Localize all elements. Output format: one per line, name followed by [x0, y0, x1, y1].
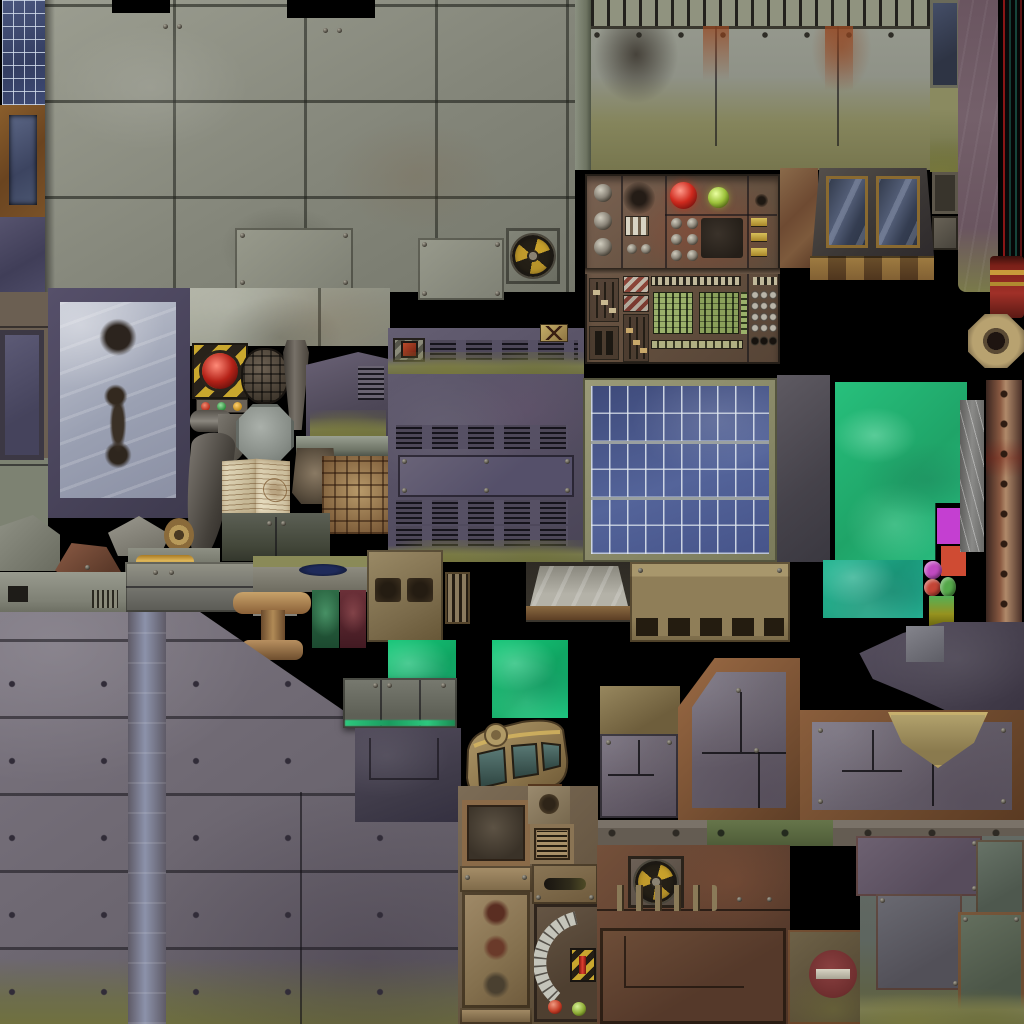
octagon-plate — [236, 404, 294, 464]
window-pane-left — [826, 176, 868, 248]
dark-button-row — [751, 336, 778, 347]
solar-cells — [591, 386, 769, 554]
magenta-button — [924, 561, 942, 579]
gauge-panel — [534, 904, 600, 1022]
maze-relief — [322, 456, 390, 534]
rivet — [767, 897, 772, 902]
book-diagram — [263, 477, 287, 503]
rivet — [402, 459, 407, 464]
toxic-glow-seam — [345, 720, 455, 726]
ramp-surface — [530, 566, 628, 606]
rivet — [387, 683, 392, 688]
keypad-grid — [92, 590, 118, 608]
diag-inner — [692, 672, 786, 808]
rivet — [163, 24, 168, 29]
panel-seam — [621, 176, 623, 268]
framed-plate — [600, 928, 786, 1024]
slider-handle — [633, 340, 640, 345]
stone-block-wall — [45, 0, 575, 292]
rust-wall-bottom — [597, 845, 790, 1024]
mossy-top-wall — [575, 0, 935, 170]
wall-notch-b — [287, 0, 375, 18]
inner-seam — [702, 752, 786, 754]
inset-seam — [369, 738, 439, 780]
patchwork-plates — [860, 836, 1024, 1024]
book-page-right — [256, 459, 290, 516]
skull-cross — [545, 326, 563, 340]
rivet — [177, 24, 182, 29]
knob-small — [671, 234, 682, 245]
vent-row — [396, 425, 568, 449]
knob-large — [594, 184, 612, 202]
red-slit — [579, 956, 586, 974]
control-panel — [585, 174, 780, 364]
rivet — [589, 895, 594, 900]
no-entry-bar — [816, 969, 850, 979]
color-strip-column — [1000, 0, 1024, 262]
rivet — [343, 233, 348, 238]
plate-screws — [460, 866, 532, 892]
rivet — [1001, 799, 1006, 804]
small-trapezoids — [0, 515, 60, 571]
ramp-chute — [526, 562, 632, 622]
solar-panel — [583, 378, 777, 562]
inner-seam — [872, 730, 874, 770]
rivet — [337, 28, 342, 33]
slider-bank-mid — [623, 314, 649, 362]
riveted-long-panel — [398, 455, 574, 497]
t-press-stem — [261, 610, 285, 644]
cabinet-handle — [267, 521, 272, 526]
slat-box — [445, 572, 470, 624]
vent-grille — [530, 824, 574, 864]
rust-streak — [703, 26, 729, 81]
rivet — [777, 568, 782, 573]
purple-pane-topleft — [0, 217, 46, 292]
plaque-b — [932, 216, 958, 250]
funnel-panel — [800, 710, 1024, 822]
yellow-key — [751, 218, 767, 226]
cabinet-split — [275, 517, 277, 557]
plaque-a — [932, 172, 958, 214]
knob-small — [627, 244, 637, 254]
washer-flower — [164, 518, 194, 552]
rivet — [606, 740, 611, 745]
rivet — [737, 897, 742, 902]
vent-row — [396, 500, 568, 524]
rivet — [323, 28, 328, 33]
rivet — [880, 898, 885, 903]
inner-seam — [638, 740, 640, 774]
shed-vents — [358, 366, 384, 400]
diagonal-corner-panel — [678, 658, 800, 822]
vent-slot-row — [636, 618, 784, 636]
slider-handle — [640, 348, 647, 353]
rivet — [484, 459, 489, 464]
book-page-left — [222, 459, 256, 516]
rivet — [754, 748, 759, 753]
rivet — [422, 242, 427, 247]
rivet — [736, 688, 741, 693]
window-sill — [810, 256, 934, 280]
inner-seam — [842, 770, 902, 772]
rivet — [963, 917, 968, 922]
red-button — [924, 579, 941, 596]
rivet — [536, 895, 541, 900]
dome-lamp-green — [708, 187, 729, 208]
hole — [539, 794, 559, 814]
tan-vent-panel — [630, 562, 790, 642]
knob-small — [671, 218, 682, 229]
skull-warning-icon — [540, 324, 568, 342]
rivet — [565, 488, 570, 493]
rivet — [484, 488, 489, 493]
octagon-nut — [968, 314, 1024, 368]
green-segment — [707, 820, 833, 846]
indicator-amber — [233, 402, 242, 411]
dark-slab — [777, 375, 830, 562]
slot-panel — [532, 864, 598, 904]
purple-framed-pane — [0, 330, 44, 460]
vent-box — [367, 550, 443, 642]
panel-seam — [665, 176, 667, 268]
knob-large — [594, 212, 612, 230]
small-pane-top — [930, 0, 960, 88]
slider-track — [629, 317, 631, 359]
rivet — [495, 242, 500, 247]
pane-glass — [9, 115, 37, 205]
pot-band — [990, 270, 1024, 275]
light-stone-band — [190, 288, 390, 346]
window-pane-right — [876, 176, 920, 248]
rivet — [85, 565, 90, 570]
seam-panel — [600, 734, 678, 818]
radiation-trefoil-icon — [512, 235, 554, 277]
button-grid — [751, 290, 778, 332]
rivet — [667, 740, 672, 745]
inset-plate — [462, 800, 530, 866]
texture-atlas-canvas — [0, 0, 1024, 1024]
plate-seam — [0, 464, 48, 466]
framed-pane-topleft — [0, 105, 46, 217]
inner-seam — [608, 774, 654, 776]
rust-streak — [825, 26, 853, 91]
screw-row — [591, 29, 935, 41]
dark-bar — [595, 331, 602, 355]
toxic-green-small — [823, 560, 923, 618]
cell-row — [651, 340, 743, 349]
cabinet — [222, 513, 330, 561]
dark-bar — [606, 331, 613, 355]
knob-small — [687, 234, 698, 245]
green-button — [940, 577, 956, 597]
rivet — [818, 728, 823, 733]
inner-seam — [624, 936, 626, 986]
rivet — [441, 683, 446, 688]
rivet — [638, 568, 643, 573]
stained-door-face — [60, 302, 176, 498]
hinge-panel — [343, 678, 457, 728]
led-grid — [699, 292, 739, 334]
dark-panel-bottom-mid — [355, 728, 461, 822]
vent-shed — [306, 352, 390, 444]
indicator-row — [651, 276, 741, 286]
yellow-key — [751, 233, 767, 241]
vent-inset — [407, 578, 433, 602]
rivet — [153, 570, 158, 575]
door-column — [458, 786, 598, 1024]
pin-row — [605, 885, 717, 911]
panel-button-green — [572, 1002, 586, 1016]
wall-plate-a — [235, 228, 353, 290]
grenade-prop — [243, 350, 287, 402]
knob-small — [687, 250, 698, 261]
puddle — [299, 564, 347, 576]
slider-handle — [626, 328, 633, 333]
emerald-square-b — [492, 640, 568, 718]
inner-seam — [740, 692, 742, 752]
rivet — [1001, 728, 1006, 733]
green-cloth-strip — [312, 590, 339, 648]
patch-plate — [876, 894, 962, 990]
inset-dark — [469, 807, 523, 859]
panel-button-red — [548, 1000, 562, 1014]
patch-moss — [860, 984, 1024, 1024]
slider-track — [596, 282, 598, 318]
rivet — [1014, 917, 1019, 922]
vent-inset — [375, 578, 401, 602]
purple-vent-wall — [388, 328, 584, 562]
slider-bank-left — [589, 278, 619, 322]
stained-door — [48, 288, 190, 518]
open-book — [222, 458, 290, 515]
slider-handle — [593, 290, 600, 295]
rivet — [373, 683, 378, 688]
wall-shadow-edge — [45, 0, 55, 292]
radiation-fan-plate-top — [506, 228, 560, 284]
rivet — [495, 291, 500, 296]
dome-lamp-red — [670, 182, 697, 209]
door-bottom-plate — [460, 1008, 532, 1024]
knob-small — [687, 218, 698, 229]
dark-port — [755, 194, 768, 207]
red-pot — [990, 256, 1024, 318]
blue-beam — [128, 612, 166, 1024]
mauve-pillar — [958, 0, 998, 292]
pot-band — [990, 282, 1024, 286]
grey-square-small — [906, 626, 944, 662]
patch-plate — [976, 840, 1024, 916]
rivet — [402, 488, 407, 493]
no-entry-icon — [809, 950, 857, 998]
yellow-key — [751, 248, 767, 256]
led-grid — [653, 292, 693, 334]
window — [812, 168, 934, 256]
slat-row — [591, 0, 935, 29]
grass-plate — [253, 556, 368, 592]
moss-column — [930, 88, 960, 172]
green-pillar — [575, 0, 591, 170]
wall-notch-a — [112, 0, 170, 13]
dual-bar-box — [589, 326, 619, 360]
rivet — [565, 459, 570, 464]
knob-large — [594, 238, 612, 256]
ramp-bar — [526, 606, 632, 620]
stripe-panel — [623, 295, 649, 312]
red-cloth-strip — [340, 590, 366, 648]
panel-seam — [665, 214, 777, 216]
mini-indicator-row — [753, 277, 777, 285]
panel-screen — [701, 218, 743, 258]
block-hole — [8, 586, 28, 602]
grille-lines — [537, 831, 567, 857]
knob-small — [641, 244, 651, 254]
rivet — [818, 799, 823, 804]
led-bar-column — [741, 292, 747, 334]
panel-divider — [585, 268, 780, 274]
inner-seam — [758, 752, 760, 808]
olive-square — [929, 596, 954, 626]
cabinet-handle — [281, 521, 286, 526]
slider-track — [636, 317, 638, 359]
tan-block — [600, 686, 680, 734]
rivet — [522, 875, 527, 880]
solar-strip-topleft — [2, 0, 47, 105]
hazard-lamp-box — [192, 343, 248, 399]
red-dome-lamp — [202, 353, 238, 389]
grass-band — [388, 352, 584, 374]
rust-pole — [986, 380, 1022, 624]
mail-slot — [544, 878, 586, 890]
inner-seam — [624, 986, 744, 988]
rivet — [343, 280, 348, 285]
panel-stain — [623, 182, 655, 214]
wall-plate-b — [418, 238, 504, 300]
rivet — [240, 233, 245, 238]
patch-plate — [856, 836, 982, 896]
rivet — [240, 280, 245, 285]
stripe-panel — [623, 276, 649, 293]
knob-small — [671, 250, 682, 261]
rivet — [422, 291, 427, 296]
toggle-switches — [625, 216, 649, 236]
rivet — [465, 875, 470, 880]
tall-door — [462, 892, 530, 1008]
scratched-pillar — [960, 400, 984, 552]
rivet — [169, 570, 174, 575]
inner-seam — [932, 762, 934, 806]
plate-seam — [0, 326, 48, 328]
wall-seam — [300, 792, 302, 1024]
block-hole — [528, 786, 570, 824]
slider-handle — [601, 300, 608, 305]
slider-handle — [609, 308, 616, 313]
hazard-chip — [570, 948, 596, 982]
keypad-block — [0, 572, 126, 614]
